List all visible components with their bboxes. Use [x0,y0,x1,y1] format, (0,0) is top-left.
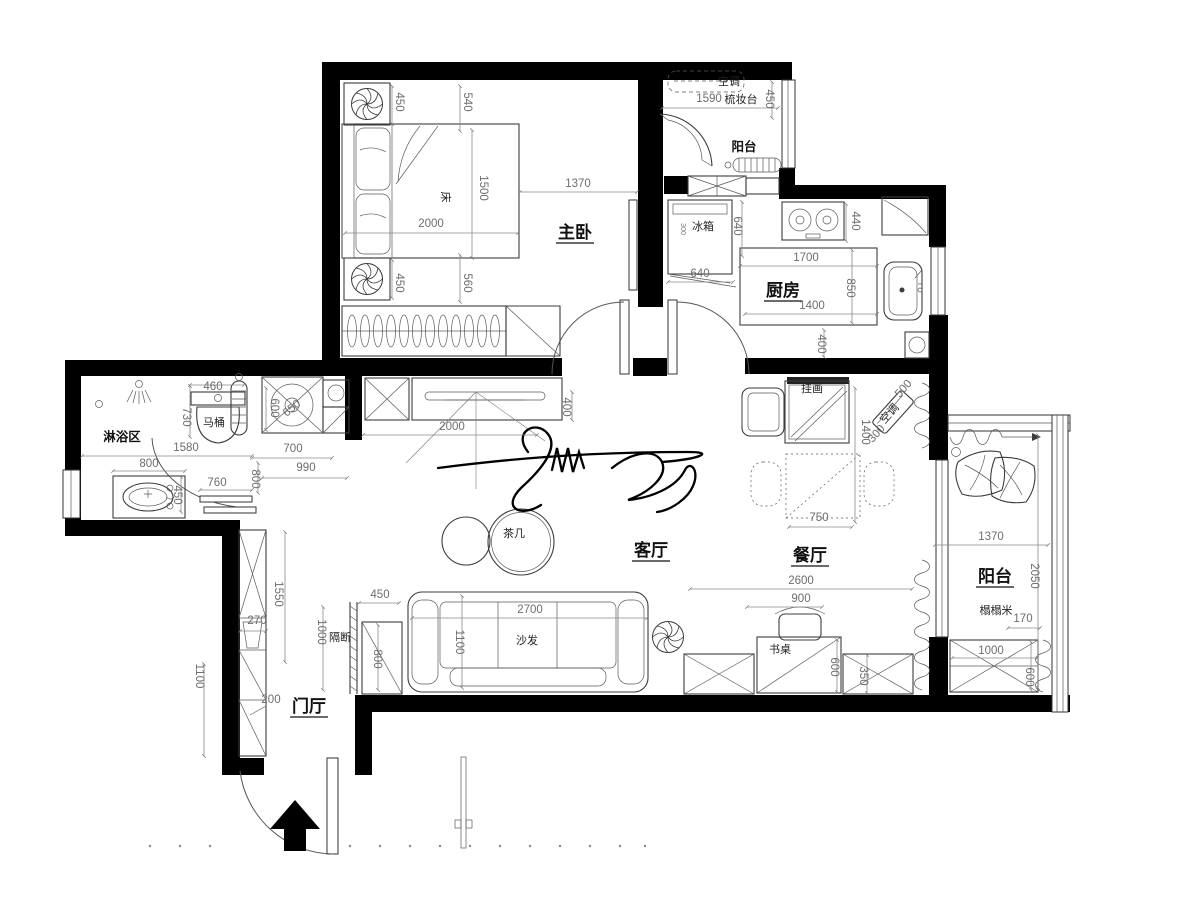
wall-south [355,695,1070,712]
dimension-label: 1700 [793,252,819,264]
dimension-label: 450 [763,89,775,108]
dimension-label: 450 [171,485,183,504]
wall-entry-bottom [222,758,264,775]
dimension-label: 1590 [696,93,722,105]
furniture-label-fridge: 冰箱 [692,219,714,233]
dimension-label: 1500 [477,175,489,201]
furniture-label-partition: 隔断 [329,630,351,644]
dimension-label: 450 [393,273,405,292]
furniture-label-desk: 书桌 [769,643,791,656]
wall-kitchen-right-upper [929,185,946,247]
wall-bath-right [345,362,362,440]
furniture-label-toilet: 马桶 [203,415,225,429]
dimension-label: 2700 [517,604,543,616]
furniture-label-dresser: 梳妆台 [725,92,758,106]
room-label-kitchen: 厨房 [766,280,800,300]
dimension-label: 600 [1023,667,1035,686]
dimension-label: 540 [461,92,473,111]
dimension-label: 1550 [272,581,284,607]
dimension-label: 1580 [173,442,199,454]
dimension-label: 800 [249,469,261,488]
room-label-living-room: 客厅 [633,540,668,560]
dimension-label: 170 [1013,613,1032,625]
dimension-label: 450 [370,589,389,601]
dimension-label: 350 [857,666,869,685]
dimension-label: 400 [815,334,827,353]
dimension-label: 1400 [799,300,825,312]
window-bath-left [63,470,80,518]
wall-center [638,62,663,307]
dimension-label: 1100 [193,664,205,689]
wall-entry-left [222,520,240,775]
dimension-label: 1000 [978,645,1004,657]
floor-plan-canvas: 主卧厨房客厅餐厅阳台门厅阳台淋浴区床茶几沙发书桌挂画冰箱300马桶梳妆台榻榻米隔… [0,0,1200,900]
dimension-label: 600 [828,657,840,676]
dimension-label: 2000 [418,218,444,230]
window-balcony-north-right [782,80,795,168]
dimension-label: 990 [296,462,315,474]
dimension-label: 1370 [978,531,1004,543]
dimension-label: 1100 [453,630,465,655]
dimension-label: 450 [393,92,405,111]
furniture-label-tea-table: 茶几 [503,527,525,540]
room-label-master-bedroom: 主卧 [558,222,592,242]
dimension-label: 270 [247,615,266,627]
fridge-size-note: 300 [679,223,686,235]
dimension-label: 730 [180,407,192,426]
wall-kitchen-right-lower [929,315,948,460]
furniture-label-bed: 床 [439,192,453,203]
room-label-shower-area: 淋浴区 [103,429,141,444]
dimension-label: 760 [207,477,226,489]
furniture-label-sofa: 沙发 [516,633,538,647]
balcony-sill-stub [664,176,688,194]
dimension-label: 640 [690,268,709,280]
dimension-label: 600 [268,398,280,417]
dimension-label: 2000 [439,421,465,433]
wall-kitchen-bottom [745,358,945,374]
dimension-label: 800 [371,649,383,668]
wall-bath-bottom [65,520,240,536]
dimension-label: 700 [283,443,302,455]
dimension-label: 400 [560,397,572,416]
wall-bath-top [65,360,340,376]
wall-balcony-pillar [929,637,948,712]
dimension-label: 750 [809,512,828,524]
window-balcony-right-frame [1052,415,1068,712]
dimension-label: 2050 [1028,563,1040,589]
window-kitchen-right [931,247,945,315]
wall-bedroom-left [322,62,340,376]
dimension-label: 2600 [788,575,814,587]
wall-center-stub [633,358,667,376]
dimension-label: 1370 [565,178,591,190]
slider-dining-balcony[interactable] [936,460,948,637]
furniture-label-ac-north: 空调 [718,74,740,88]
room-label-dining-room: 餐厅 [793,545,827,565]
dimension-label: 640 [731,216,743,235]
dimension-label: 200 [261,694,280,706]
dimension-label: 560 [461,273,473,292]
room-label-balcony-east: 阳台 [978,566,1012,586]
dimension-label: 900 [791,593,810,605]
dimension-label: 800 [139,458,158,470]
dimension-label: 1000 [315,619,327,645]
dimension-label: 440 [849,211,861,230]
door-bedroom-pocket-slider[interactable] [629,200,637,290]
furniture-label-tatami: 榻榻米 [980,603,1013,617]
dimension-label: 850 [844,278,856,297]
room-label-entry-hall: 门厅 [292,696,326,716]
room-label-balcony-north: 阳台 [731,139,756,154]
furniture-label-hanging-picture: 挂画 [801,381,823,395]
dimension-label: 460 [203,381,222,393]
